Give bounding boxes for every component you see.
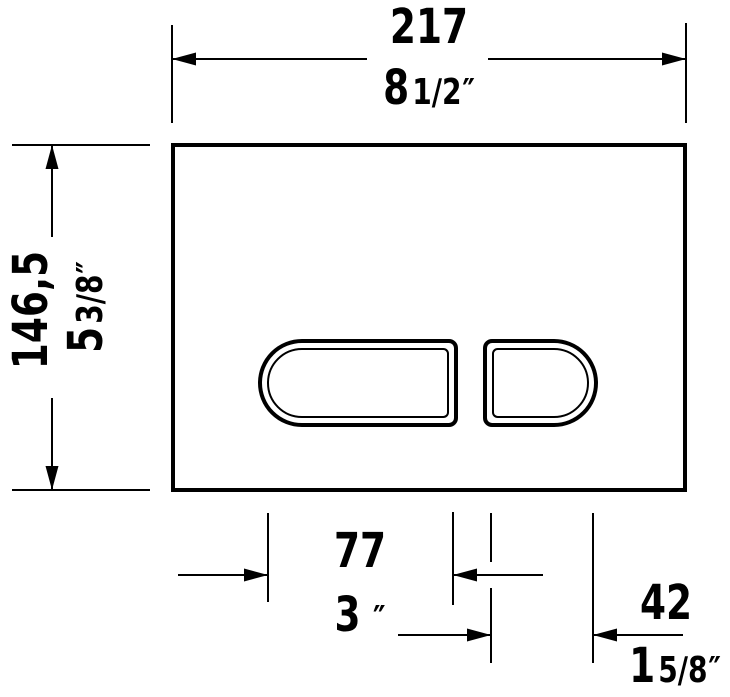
large-flush-button xyxy=(258,339,458,427)
arrowhead-left-icon xyxy=(593,629,617,642)
small-button-width-inch-label: 15/8″ xyxy=(629,642,721,690)
large-flush-button-inner-contour xyxy=(267,348,449,418)
small-button-width-inch-fraction: 5/8 xyxy=(658,650,707,691)
plate-width-inch-label: 81/2″ xyxy=(383,64,475,112)
plate-height-inch-label: 53/8″ xyxy=(62,261,110,353)
small-flush-button-inner-contour xyxy=(492,348,589,418)
plate-width-mm-value: 217 xyxy=(390,0,468,55)
flush-plate-outline xyxy=(171,143,687,492)
arrowhead-right-icon xyxy=(662,53,686,66)
technical-drawing-canvas: 217 81/2″ 146,5 53/8″ 77 3″ 42 15/8″ xyxy=(0,0,730,697)
plate-width-inch-fraction: 1/2 xyxy=(412,72,461,113)
large-button-width-mm-label: 77 xyxy=(334,527,386,575)
large-button-width-inch-label: 3″ xyxy=(334,591,385,639)
small-flush-button xyxy=(483,339,598,427)
arrowhead-up-icon xyxy=(46,145,59,169)
arrowhead-down-icon xyxy=(46,466,59,490)
inch-mark-icon: ″ xyxy=(708,650,721,691)
arrowhead-left-icon xyxy=(172,53,196,66)
plate-width-mm-label: 217 xyxy=(390,3,468,51)
inch-mark-icon: ″ xyxy=(70,261,111,274)
large-button-width-mm-value: 77 xyxy=(334,523,386,579)
arrowhead-right-icon xyxy=(467,629,491,642)
large-button-width-inch-whole: 3 xyxy=(334,587,360,643)
plate-height-mm-value: 146,5 xyxy=(3,251,59,369)
inch-mark-icon: ″ xyxy=(462,72,475,113)
inch-mark-icon: ″ xyxy=(373,599,386,640)
plate-width-inch-whole: 8 xyxy=(383,60,409,116)
small-button-width-inch-whole: 1 xyxy=(629,638,655,694)
plate-height-inch-fraction: 3/8 xyxy=(70,274,111,323)
plate-height-mm-label: 146,5 xyxy=(7,251,55,369)
small-button-width-mm-value: 42 xyxy=(640,575,692,631)
plate-height-inch-whole: 5 xyxy=(58,327,114,353)
arrowhead-left-icon xyxy=(453,569,477,582)
arrowhead-right-icon xyxy=(244,569,268,582)
small-button-width-mm-label: 42 xyxy=(640,579,692,627)
